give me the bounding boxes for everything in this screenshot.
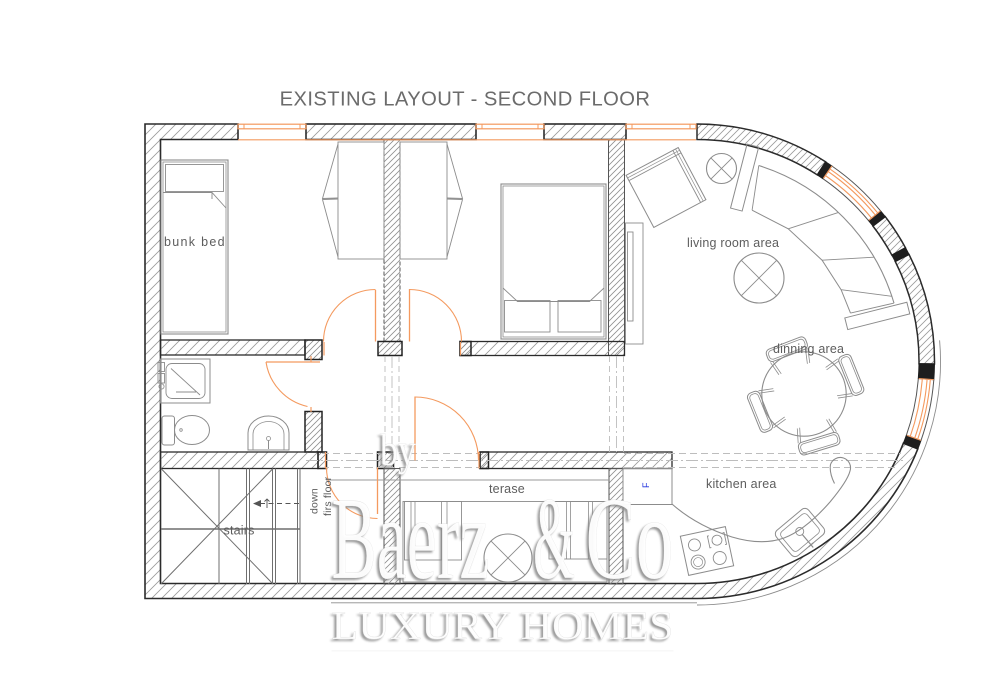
svg-text:by: by [380,424,416,475]
svg-text:Co: Co [586,473,674,604]
svg-text:bunk bed: bunk bed [164,235,226,249]
svg-text:living room area: living room area [687,236,779,250]
svg-text:Baerz: Baerz [332,473,490,604]
svg-text:EXISTING LAYOUT - SECOND FLOOR: EXISTING LAYOUT - SECOND FLOOR [280,89,651,111]
svg-text:LUXURY HOMES: LUXURY HOMES [332,603,674,648]
svg-text:terase: terase [489,482,525,496]
svg-text:down: down [309,488,321,514]
svg-text:&: & [533,473,575,604]
svg-text:stairs: stairs [224,524,255,538]
svg-text:kitchen area: kitchen area [706,477,777,491]
svg-text:dinning area: dinning area [773,342,844,356]
